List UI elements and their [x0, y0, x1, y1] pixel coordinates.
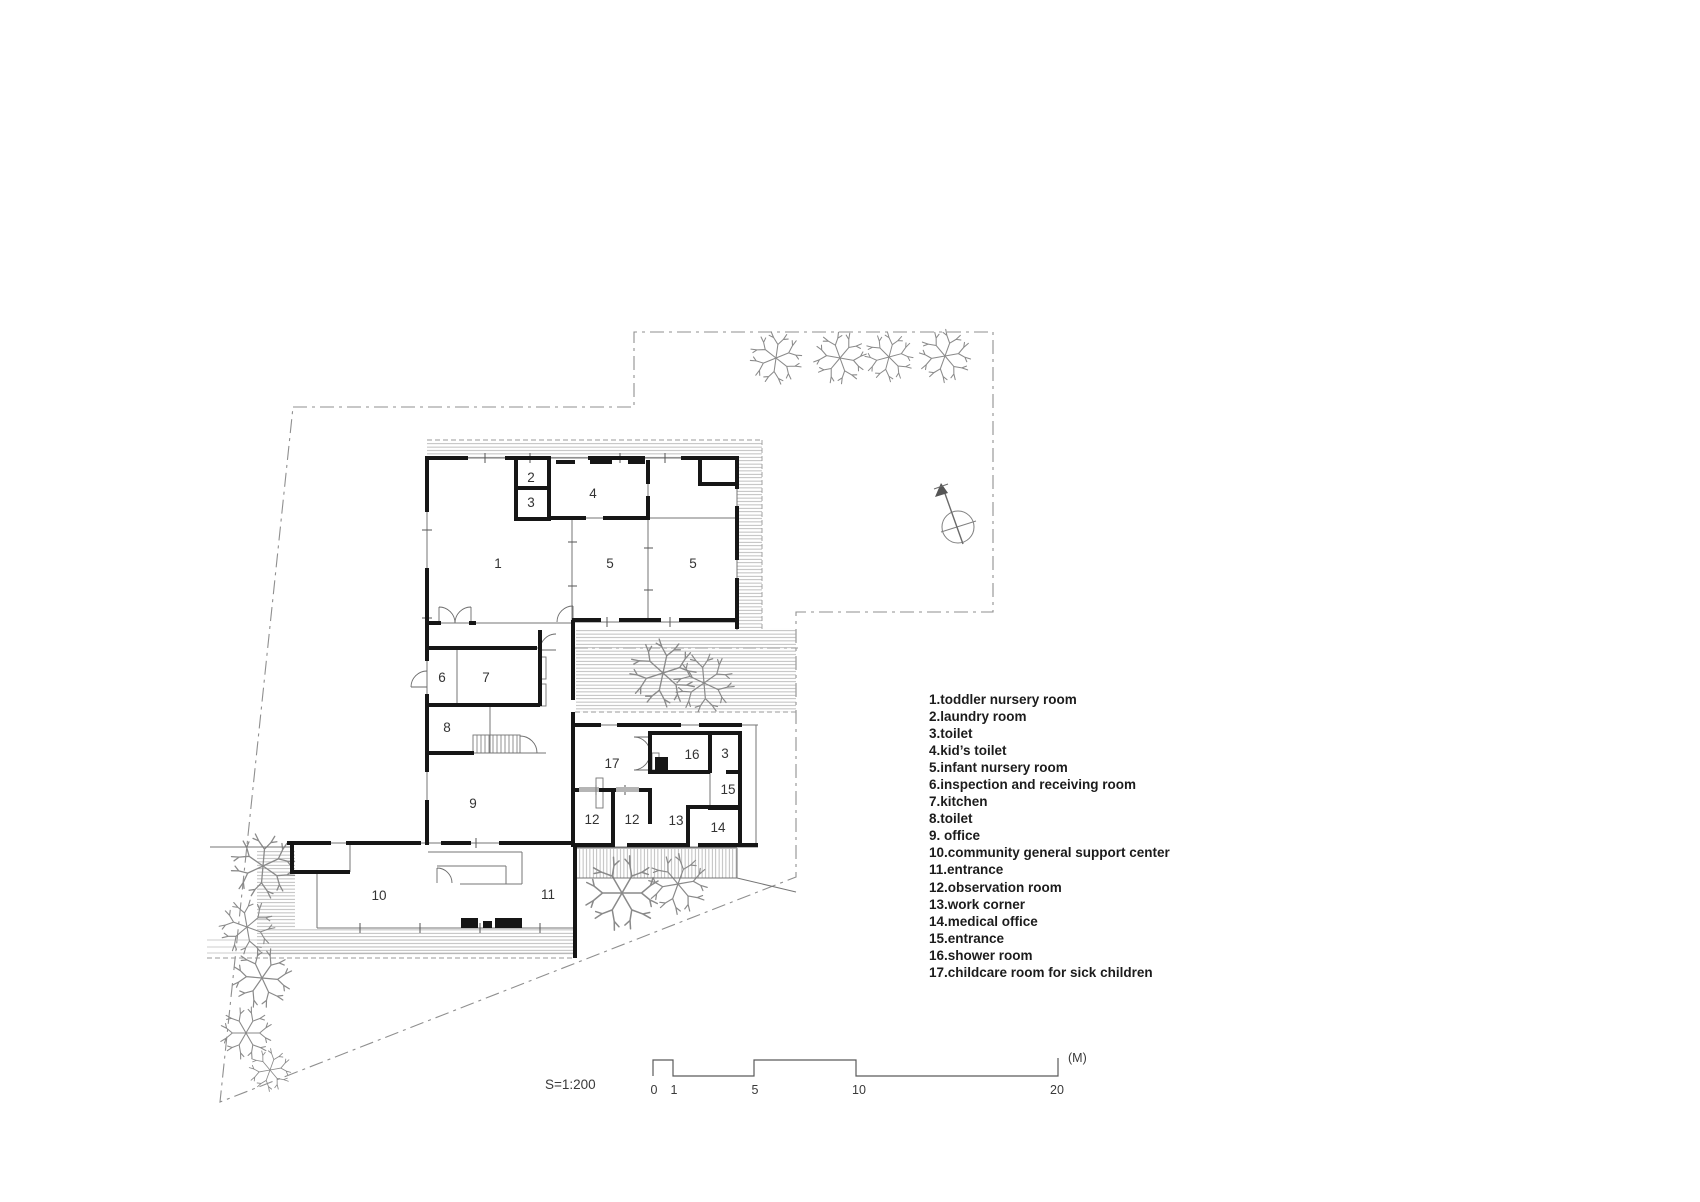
room-label-5a: 5: [606, 556, 614, 571]
scale-ratio-label: S=1:200: [545, 1077, 596, 1092]
room-label-17: 17: [604, 756, 619, 771]
scale-bar: S=1:200 0 1 5 10 20 (M): [545, 1051, 1087, 1097]
tree-icon: [210, 998, 282, 1068]
floor-plan-drawing: 1 2 3 4 5 5 6 7 8 9 10 11 12 12 13 14 15…: [0, 0, 1700, 1202]
south-deck-strip: [257, 928, 575, 955]
deck-top-band: [427, 441, 762, 458]
legend-item: 2.laundry room: [929, 708, 1170, 725]
room-label-9: 9: [469, 796, 477, 811]
room-label-10: 10: [371, 888, 386, 903]
tree-icon: [911, 323, 979, 389]
entrance-door-wall: [495, 918, 522, 928]
shower-fixture: [655, 757, 668, 772]
north-arrow: [934, 483, 976, 544]
entrance-door-wall: [483, 921, 492, 928]
room-label-3: 3: [527, 495, 535, 510]
tree-icon: [860, 327, 918, 388]
room-label-14: 14: [710, 820, 726, 835]
room-label-8: 8: [443, 720, 451, 735]
room-label-12a: 12: [584, 812, 599, 827]
scale-tick-0: 0: [651, 1083, 658, 1097]
scale-unit-label: (M): [1068, 1051, 1087, 1065]
room-label-7: 7: [482, 670, 490, 685]
tree-icon: [243, 1043, 298, 1096]
tree-icon: [746, 329, 806, 386]
entrance-side-deck: [577, 849, 737, 878]
room-label-4: 4: [589, 486, 597, 501]
room-label-12b: 12: [624, 812, 639, 827]
room-label-13: 13: [668, 813, 683, 828]
legend-item: 13.work corner: [929, 896, 1170, 913]
room-label-11: 11: [541, 887, 555, 902]
legend-item: 1.toddler nursery room: [929, 691, 1170, 708]
room-label-6: 6: [438, 670, 446, 685]
legend-item: 7.kitchen: [929, 793, 1170, 810]
legend-item: 12.observation room: [929, 879, 1170, 896]
floor-plan-canvas: 1 2 3 4 5 5 6 7 8 9 10 11 12 12 13 14 15…: [0, 0, 1700, 1202]
room-label-2: 2: [527, 470, 535, 485]
scale-tick-20: 20: [1050, 1083, 1064, 1097]
legend-item: 11.entrance: [929, 861, 1170, 878]
legend-item: 15.entrance: [929, 930, 1170, 947]
legend-item: 4.kid’s toilet: [929, 742, 1170, 759]
legend-item: 17.childcare room for sick children: [929, 964, 1170, 981]
room-legend: 1.toddler nursery room 2.laundry room 3.…: [929, 691, 1170, 981]
entrance-door-wall: [461, 918, 478, 928]
deck-right-band: [737, 458, 762, 630]
legend-item: 6.inspection and receiving room: [929, 776, 1170, 793]
room-label-15: 15: [720, 782, 735, 797]
legend-item: 3.toilet: [929, 725, 1170, 742]
legend-item: 8.toilet: [929, 810, 1170, 827]
scale-tick-10: 10: [852, 1083, 866, 1097]
room-label-16: 16: [684, 747, 699, 762]
scale-tick-5: 5: [752, 1083, 759, 1097]
scale-tick-1: 1: [671, 1083, 678, 1097]
stairs: [473, 735, 520, 753]
room-label-3b: 3: [721, 746, 729, 761]
legend-item: 16.shower room: [929, 947, 1170, 964]
legend-item: 10.community general support center: [929, 844, 1170, 861]
room-label-5b: 5: [689, 556, 697, 571]
room-label-1: 1: [494, 556, 502, 571]
legend-item: 9. office: [929, 827, 1170, 844]
legend-item: 5.infant nursery room: [929, 759, 1170, 776]
legend-item: 14.medical office: [929, 913, 1170, 930]
